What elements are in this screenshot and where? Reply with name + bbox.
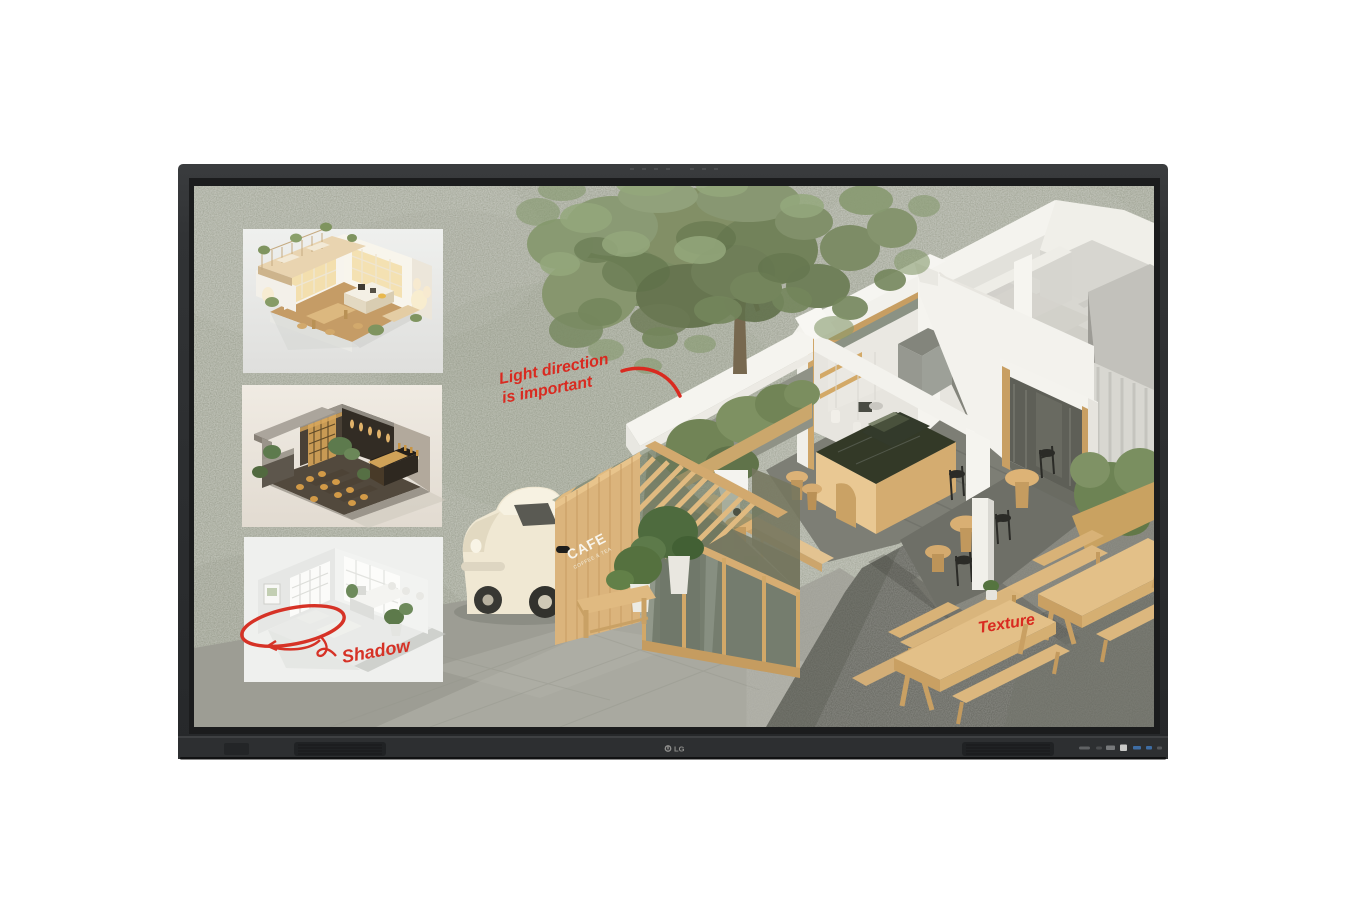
svg-text:LG: LG xyxy=(674,745,685,754)
